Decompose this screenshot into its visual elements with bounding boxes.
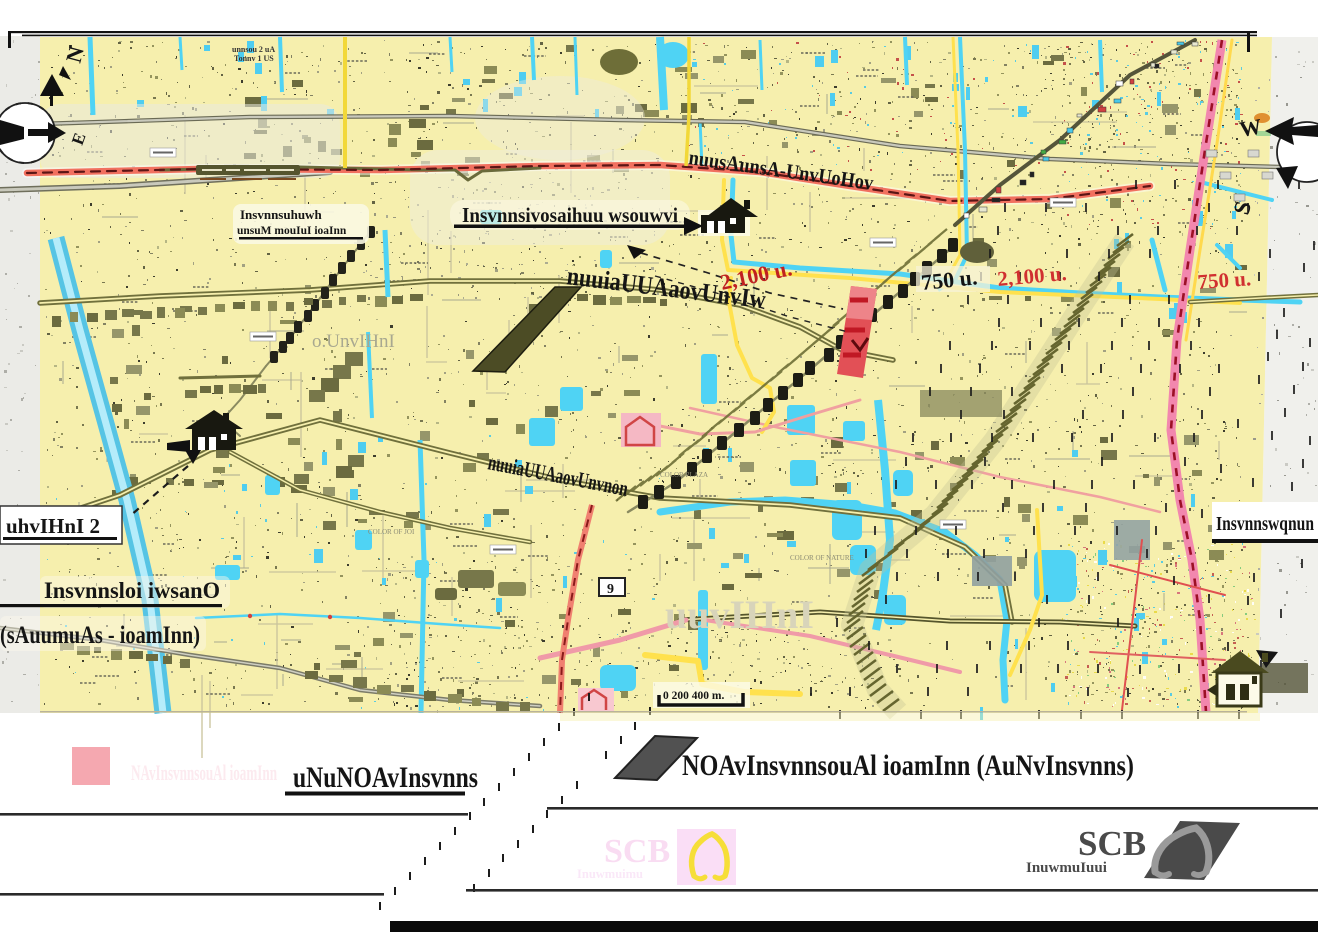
svg-text:uuvIHnI: uuvIHnI	[665, 592, 814, 637]
svg-text:unnsou 2 uA: unnsou 2 uA	[232, 45, 275, 54]
svg-text:0 200 400 m.: 0 200 400 m.	[663, 690, 724, 702]
svg-text:Insvnnsuhuwh: Insvnnsuhuwh	[240, 207, 322, 222]
svg-text:COLOR OF JOI: COLOR OF JOI	[368, 528, 415, 536]
svg-text:Insvnnsivosaihuu wsouwvi: Insvnnsivosaihuu wsouwvi	[462, 203, 678, 227]
svg-text:9: 9	[607, 582, 614, 597]
svg-text:NOAvInsvnnsouAl ioamInn (AuNvI: NOAvInsvnnsouAl ioamInn (AuNvInsvnns)	[682, 749, 1134, 782]
svg-text:(sAuumuAs - ioamInn): (sAuumuAs - ioamInn)	[0, 622, 200, 649]
svg-text:Insvnnswqnun: Insvnnswqnun	[1216, 513, 1314, 535]
svg-text:COLOR PLAZA: COLOR PLAZA	[660, 471, 708, 479]
svg-text:InuwmuIuui: InuwmuIuui	[1026, 860, 1107, 876]
svg-text:Tonnv 1 US: Tonnv 1 US	[234, 54, 274, 63]
svg-text:o.UnvIHnI: o.UnvIHnI	[312, 331, 395, 352]
svg-text:unsuM mouIuI ioaInn: unsuM mouIuI ioaInn	[237, 225, 347, 237]
svg-text:SCB: SCB	[604, 833, 670, 870]
svg-text:W: W	[1238, 113, 1264, 141]
svg-text:COLOR OF NATURE: COLOR OF NATURE	[790, 554, 854, 562]
svg-text:uhvIHnI 2: uhvIHnI 2	[6, 514, 100, 538]
svg-text:750 u.: 750 u.	[1197, 266, 1252, 294]
svg-text:Insvnnsloi iwsanO: Insvnnsloi iwsanO	[44, 578, 220, 603]
svg-text:SCB: SCB	[1078, 824, 1146, 863]
svg-text:NAvInsvnnsouAl ioamInn: NAvInsvnnsouAl ioamInn	[131, 760, 277, 785]
svg-text:uNuNOAvInsvnns: uNuNOAvInsvnns	[293, 761, 478, 794]
svg-text:Inuwmuimu: Inuwmuimu	[577, 867, 643, 881]
